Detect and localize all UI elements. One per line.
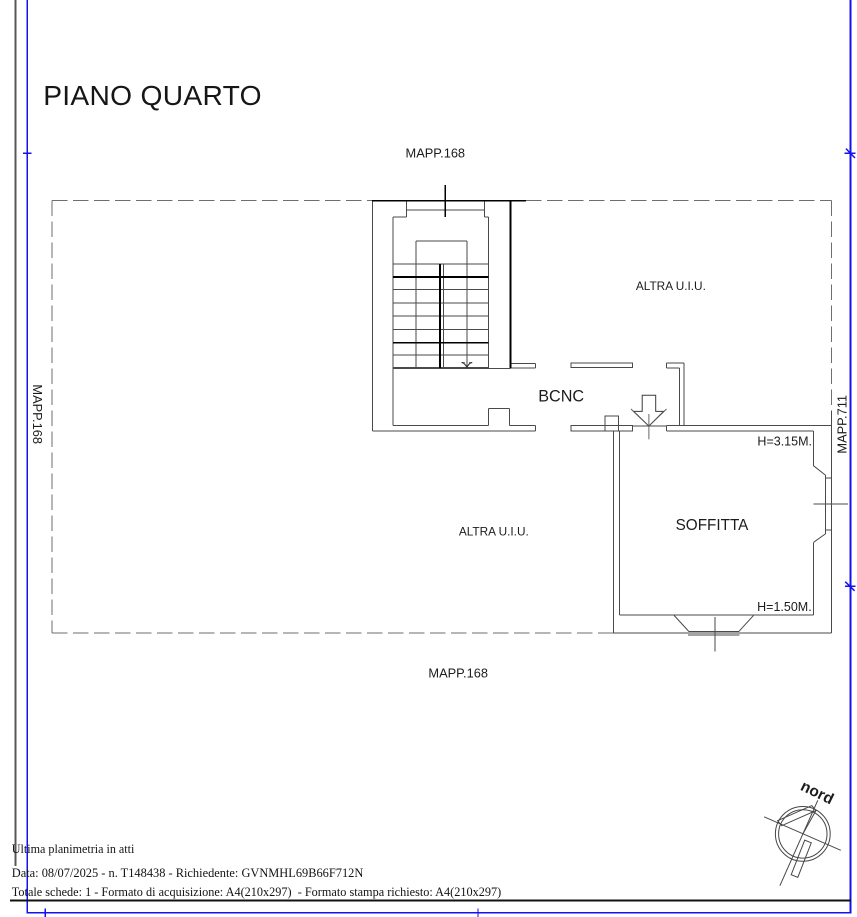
- svg-text:MAPP.168: MAPP.168: [406, 146, 466, 161]
- svg-text:MAPP.168: MAPP.168: [428, 665, 488, 680]
- svg-text:H=3.15M.: H=3.15M.: [757, 435, 812, 449]
- svg-text:ALTRA U.I.U.: ALTRA U.I.U.: [459, 525, 529, 539]
- svg-text:MAPP.168: MAPP.168: [30, 384, 45, 444]
- svg-text:BCNC: BCNC: [538, 388, 584, 406]
- svg-text:ALTRA U.I.U.: ALTRA U.I.U.: [636, 279, 706, 293]
- svg-text:SOFFITTA: SOFFITTA: [676, 517, 750, 534]
- svg-text:MAPP.711: MAPP.711: [834, 395, 849, 454]
- svg-text:nord: nord: [798, 778, 836, 808]
- svg-text:H=1.50M.: H=1.50M.: [757, 600, 812, 614]
